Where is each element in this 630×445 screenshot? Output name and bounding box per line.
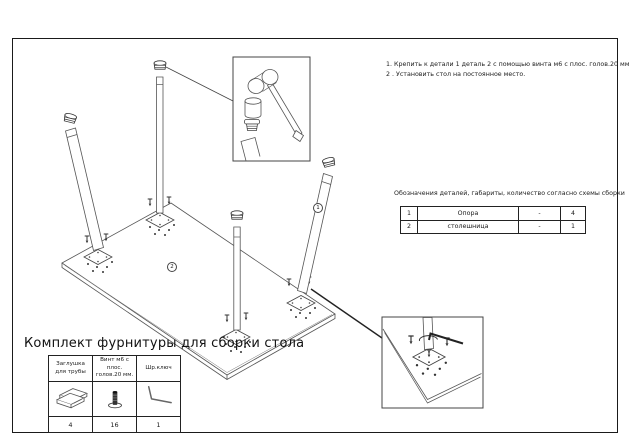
part-dim: - (519, 207, 561, 221)
detail-callout-plug (233, 57, 310, 161)
kit-icon-row (49, 382, 181, 417)
part-qty: 4 (561, 207, 586, 221)
tabletop (62, 203, 335, 380)
kit-qty: 16 (93, 417, 137, 433)
instruction-line-1: 1. Крепить к детали 1 деталь 2 с помощью… (386, 60, 626, 70)
detail-callout-leg-mount (382, 317, 483, 408)
parts-table-row: 1 Опора - 4 (401, 207, 586, 221)
pipe-top-icon (245, 98, 261, 118)
kit-qty: 4 (49, 417, 93, 433)
parts-note: Обозначения деталей, габариты, количеств… (394, 190, 626, 197)
kit-column-label: Шр.ключ (137, 356, 181, 382)
kit-qty-row: 4 16 1 (49, 417, 181, 433)
kit-header-row: Заглушка для трубы Винт м6 с плос. голов… (49, 356, 181, 382)
part-number: 2 (401, 220, 418, 234)
part-qty: 1 (561, 220, 586, 234)
flat-head-screw-icon (96, 383, 134, 411)
part-name: столешница (418, 220, 519, 234)
kit-column-label: Заглушка для трубы (49, 356, 93, 382)
hardware-kit-table: Заглушка для трубы Винт м6 с плос. голов… (48, 355, 181, 433)
assembly-instructions: 1. Крепить к детали 1 деталь 2 с помощью… (386, 60, 626, 80)
callout-line-plug (166, 67, 233, 101)
hardware-kit-title: Комплект фурнитуры для сборки стола (24, 336, 304, 351)
instruction-line-2: 2 . Установить стол на постоянное место. (386, 70, 626, 80)
parts-table-row: 2 столешница - 1 (401, 220, 586, 234)
leg-back-left (146, 61, 174, 228)
kit-qty: 1 (137, 417, 181, 433)
part-number: 1 (401, 207, 418, 221)
part-dim: - (519, 220, 561, 234)
part-callout-2: 2 (167, 262, 177, 272)
part-callout-1: 1 (313, 203, 323, 213)
pipe-plug-icon (52, 383, 90, 411)
parts-table: 1 Опора - 4 2 столешница - 1 (400, 206, 586, 234)
hex-key-icon (140, 383, 178, 411)
drawing-sheet: 1 2 1. Крепить к детали 1 деталь 2 с пом… (0, 0, 630, 445)
kit-column-label: Винт м6 с плос. голов.20 мм. (93, 356, 137, 382)
part-name: Опора (418, 207, 519, 221)
